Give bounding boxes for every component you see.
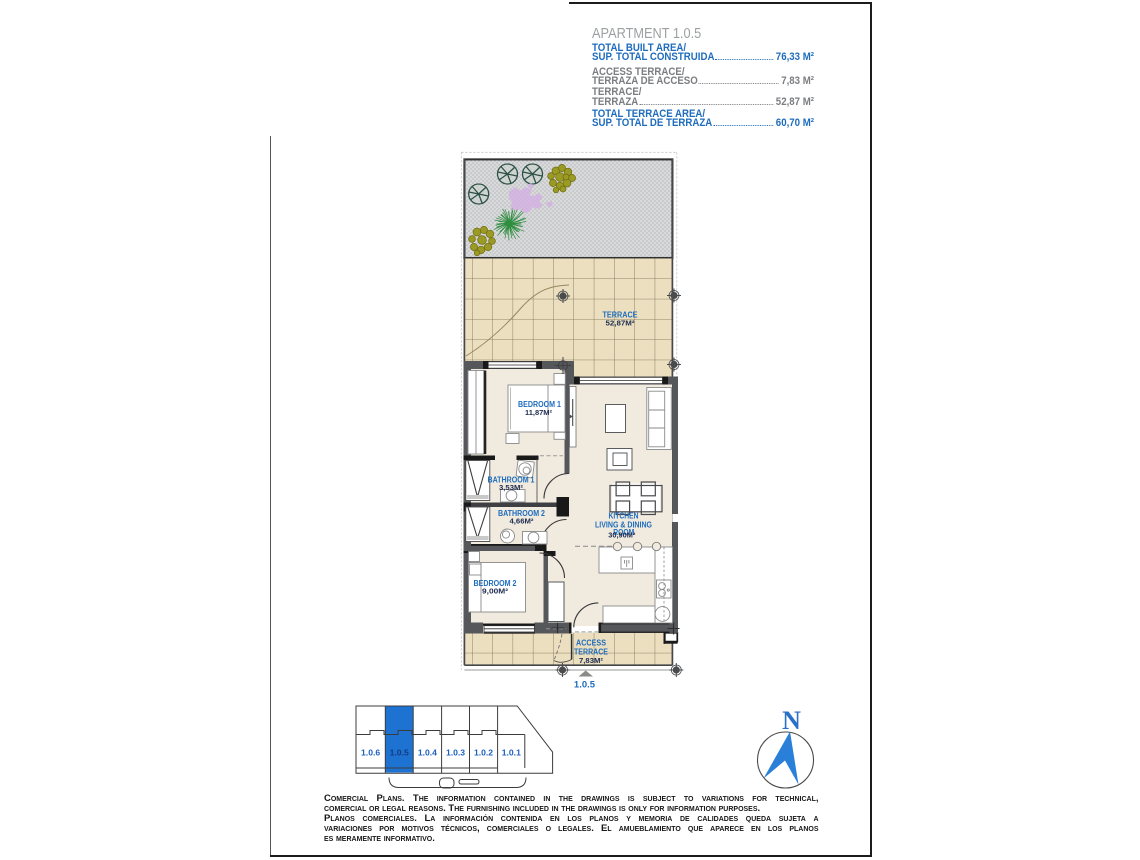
svg-text:N: N — [782, 706, 801, 735]
svg-text:4,66M²: 4,66M² — [510, 519, 535, 526]
svg-text:11,87M²: 11,87M² — [525, 410, 553, 417]
svg-text:52,87M²: 52,87M² — [606, 321, 636, 328]
svg-text:TERRACE: TERRACE — [603, 311, 638, 320]
svg-text:9,00M²: 9,00M² — [482, 589, 509, 596]
svg-text:TERRACE: TERRACE — [574, 648, 608, 657]
svg-text:1.0.3: 1.0.3 — [446, 748, 465, 758]
svg-text:1.0.5: 1.0.5 — [390, 748, 409, 758]
svg-text:ACCESS: ACCESS — [576, 639, 606, 648]
svg-text:BATHROOM 1: BATHROOM 1 — [488, 476, 536, 485]
svg-text:1.0.6: 1.0.6 — [361, 748, 380, 758]
svg-text:BEDROOM 2: BEDROOM 2 — [474, 579, 518, 588]
svg-text:1.0.2: 1.0.2 — [474, 748, 493, 758]
svg-text:30,90M²: 30,90M² — [608, 532, 636, 539]
svg-text:7,83M²: 7,83M² — [579, 658, 604, 665]
svg-text:KITCHEN: KITCHEN — [609, 511, 639, 520]
svg-text:1.0.1: 1.0.1 — [502, 748, 521, 758]
svg-text:3,53M²: 3,53M² — [499, 485, 524, 492]
svg-text:1.0.4: 1.0.4 — [418, 748, 437, 758]
svg-text:BEDROOM 1: BEDROOM 1 — [518, 400, 562, 409]
svg-text:1.0.5: 1.0.5 — [574, 680, 596, 691]
svg-text:BATHROOM 2: BATHROOM 2 — [498, 509, 546, 518]
